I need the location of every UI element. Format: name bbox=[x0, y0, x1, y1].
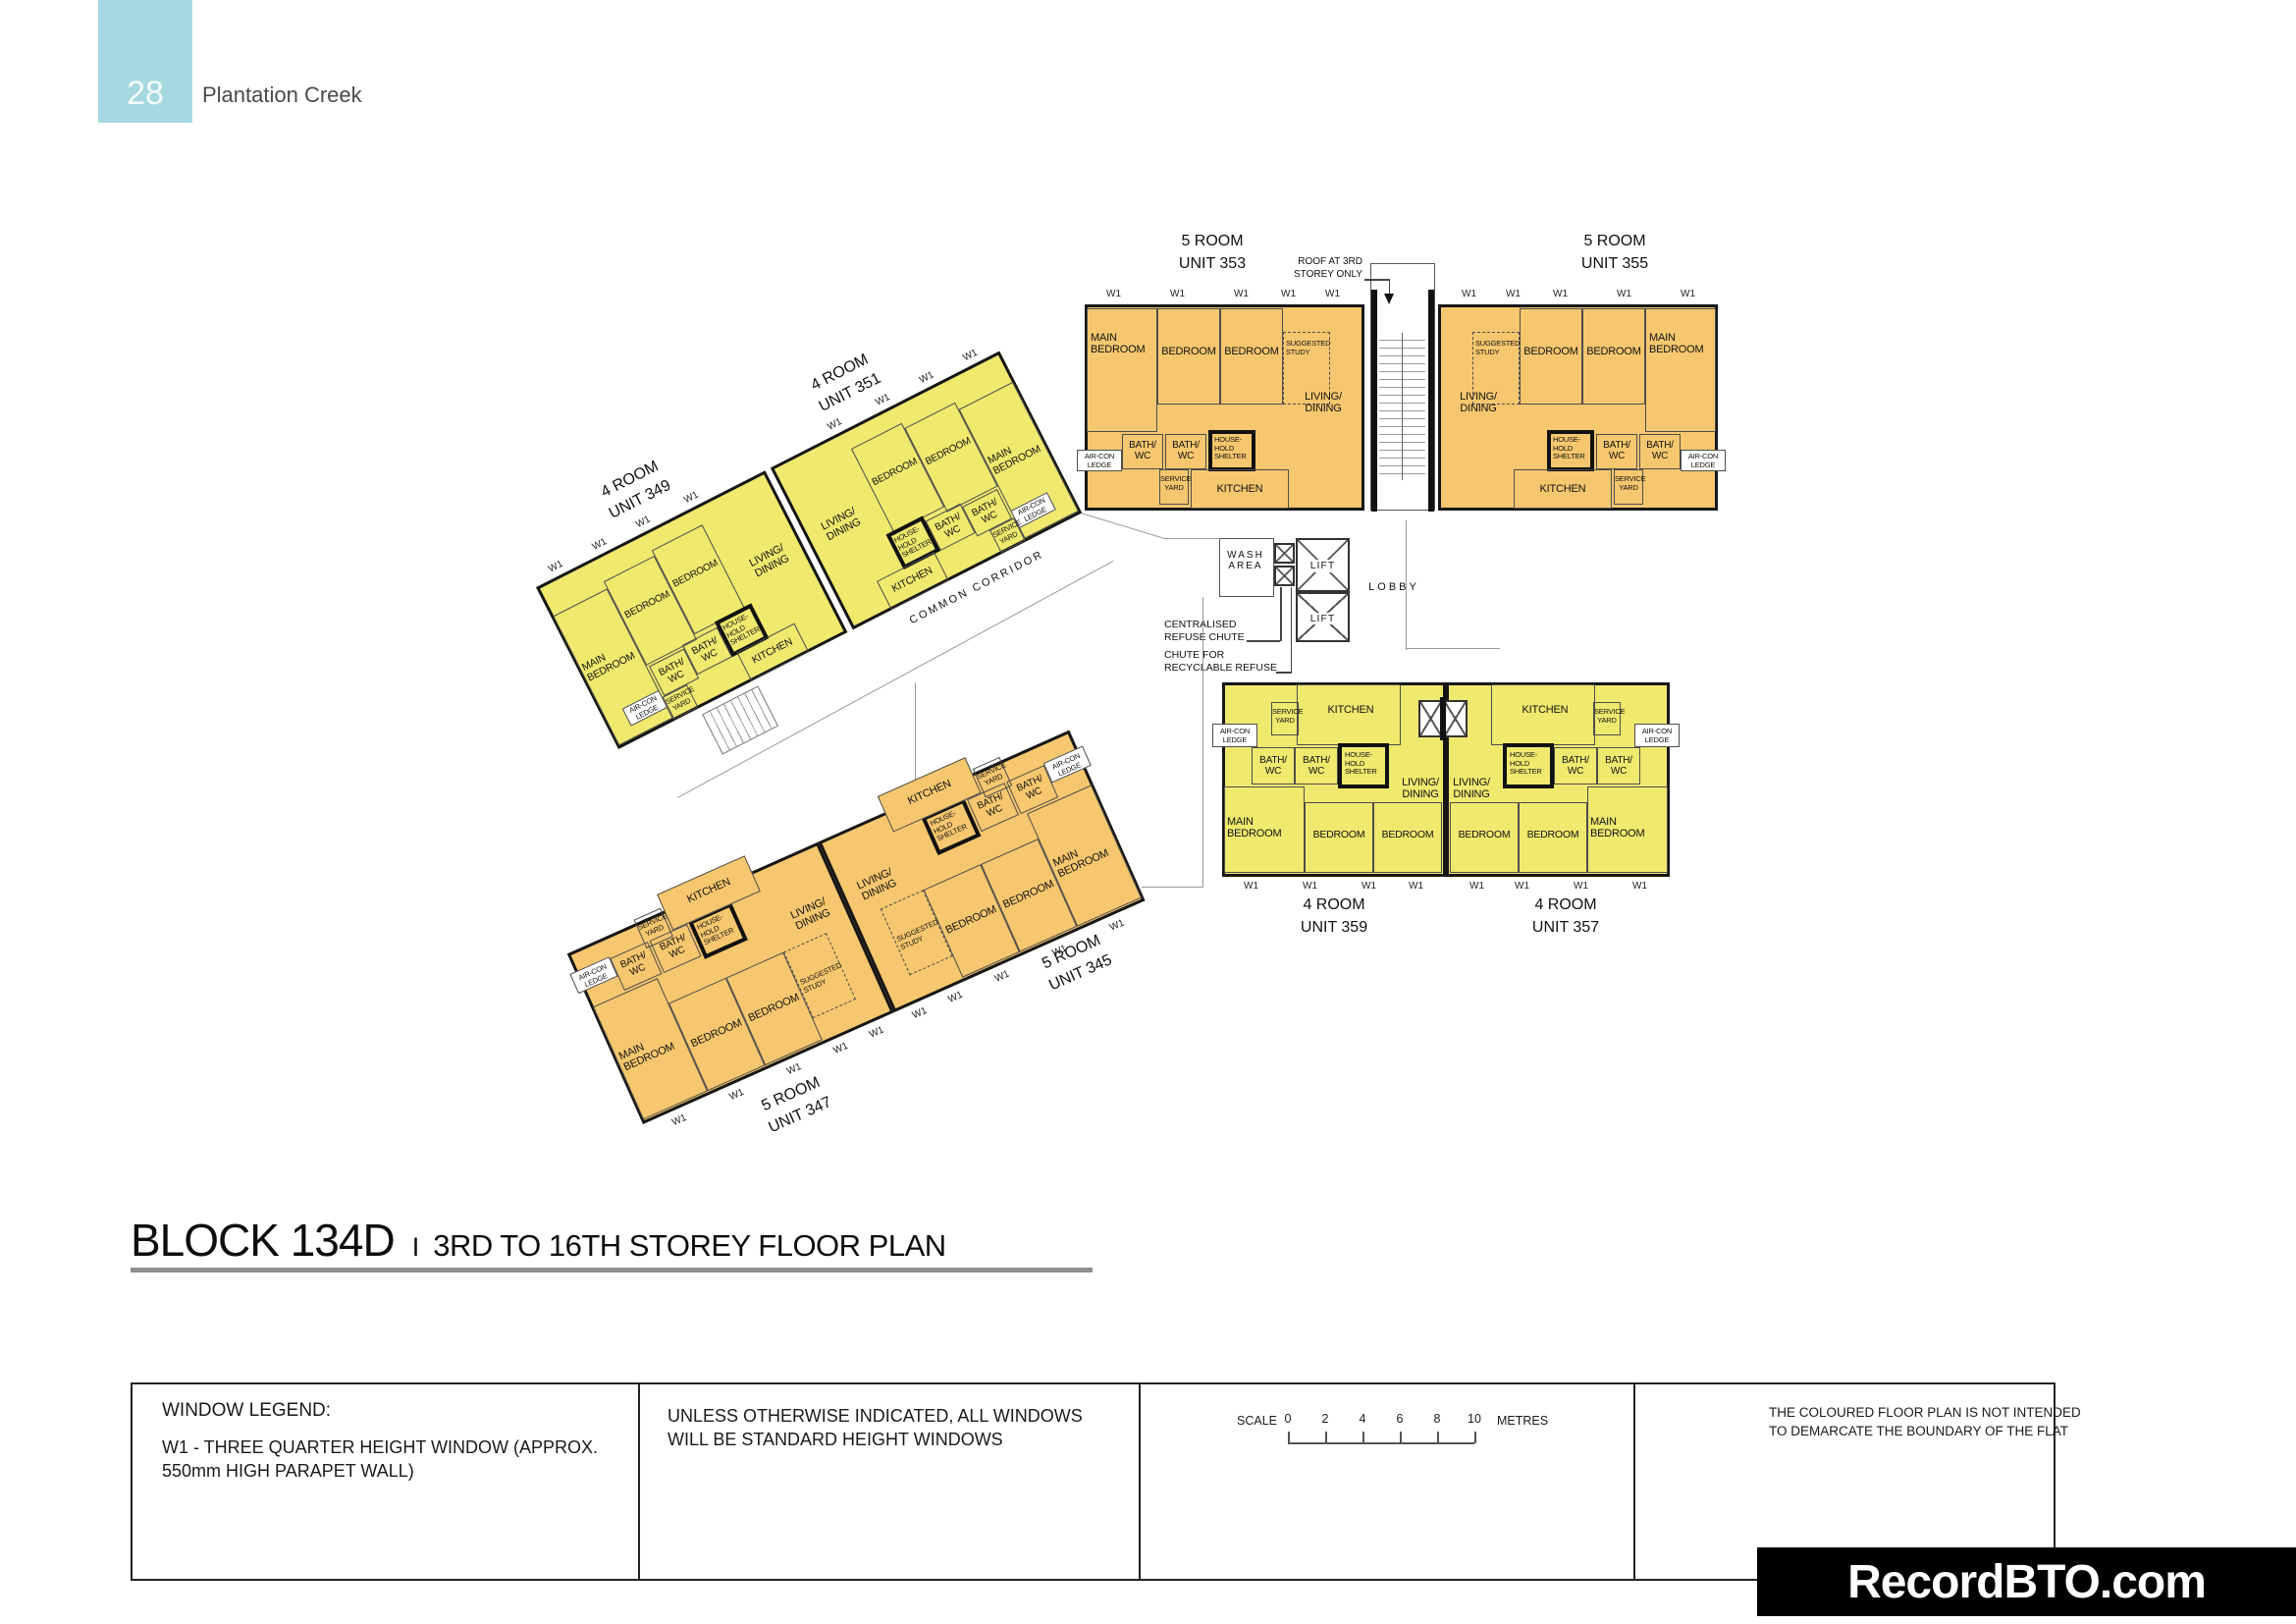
w1-window-label: W1 bbox=[961, 348, 979, 364]
stair-wall bbox=[1428, 290, 1434, 512]
room-label-bedroom: BEDROOM bbox=[1375, 830, 1440, 841]
w1-window-label: W1 bbox=[868, 1025, 885, 1041]
unit-type: 5 ROOM bbox=[1526, 230, 1703, 252]
block-title: BLOCK 134D bbox=[131, 1215, 395, 1266]
w1-window-label: W1 bbox=[831, 1041, 849, 1056]
room-label-bath-wc: BATH/ WC bbox=[1598, 440, 1635, 461]
plan-title: BLOCK 134DI3RD TO 16TH STOREY FLOOR PLAN bbox=[131, 1214, 946, 1267]
block-349-351: 4 ROOM UNIT 349 4 ROOM UNIT 351 W1 W1 W1… bbox=[536, 352, 1082, 749]
room-label-living-dining: LIVING/ DINING bbox=[1293, 391, 1354, 414]
table-divider bbox=[1139, 1384, 1141, 1579]
room-label-bedroom: BEDROOM bbox=[1584, 346, 1643, 357]
w1-window-label: W1 bbox=[1462, 289, 1476, 299]
window-legend-body: W1 - THREE QUARTER HEIGHT WINDOW (APPROX… bbox=[162, 1435, 604, 1484]
room-label-main-bedroom: MAIN BEDROOM bbox=[1227, 816, 1304, 839]
corridor-line bbox=[1406, 648, 1500, 649]
scale-bar-tick bbox=[1288, 1432, 1290, 1443]
room-label-service-yard: SERVICE YARD bbox=[1160, 475, 1188, 492]
room-label-bedroom: BEDROOM bbox=[1521, 830, 1585, 841]
unit-type: 5 ROOM bbox=[1124, 230, 1301, 252]
w1-window-label: W1 bbox=[1617, 289, 1631, 299]
unit-tag-359: 4 ROOM UNIT 359 bbox=[1246, 893, 1422, 939]
room-label-living-dining: LIVING/ DINING bbox=[1448, 777, 1495, 800]
room-label-bath-wc: BATH/ WC bbox=[1641, 440, 1679, 461]
w1-window-label: W1 bbox=[1632, 881, 1647, 892]
w1-window-label: W1 bbox=[634, 514, 652, 531]
disclaimer-note: THE COLOURED FLOOR PLAN IS NOT INTENDED … bbox=[1769, 1404, 2103, 1441]
room-main-bedroom bbox=[1645, 308, 1716, 432]
room-label-kitchen: KITCHEN bbox=[1533, 483, 1592, 495]
unit-359: 4 ROOM UNIT 359 W1 W1 W1 W1 KITCHEN SERV… bbox=[1222, 682, 1446, 877]
w1-window-label: W1 bbox=[1170, 289, 1185, 299]
room-label-household-shelter: HOUSE- HOLD SHELTER bbox=[1345, 751, 1386, 777]
scale-bar-tick bbox=[1325, 1432, 1327, 1443]
w1-window-label: W1 bbox=[1362, 881, 1376, 892]
w1-window-label: W1 bbox=[785, 1061, 803, 1077]
room-label-household-shelter: HOUSE- HOLD SHELTER bbox=[1553, 436, 1592, 461]
room-label-suggested-study: SUGGESTED STUDY bbox=[1286, 340, 1329, 356]
unit-number: UNIT 359 bbox=[1246, 916, 1422, 939]
w1-window-label: W1 bbox=[874, 392, 891, 408]
w1-window-label: W1 bbox=[1244, 881, 1258, 892]
scale-unit: METRES bbox=[1497, 1414, 1548, 1428]
project-name: Plantation Creek bbox=[202, 82, 362, 108]
unit-353: 5 ROOM UNIT 353 W1 W1 W1 W1 W1 MAIN BEDR… bbox=[1085, 304, 1364, 511]
room-label-main-bedroom: MAIN BEDROOM bbox=[1649, 332, 1716, 355]
room-label-kitchen: KITCHEN bbox=[1210, 483, 1269, 495]
w1-window-label: W1 bbox=[682, 490, 700, 507]
room-label-bath-wc: BATH/ WC bbox=[1255, 755, 1292, 777]
room-label-living-dining: LIVING/ DINING bbox=[1397, 777, 1444, 800]
lift-1: LIFT bbox=[1296, 538, 1350, 592]
w1-window-label: W1 bbox=[1303, 881, 1317, 892]
room-label-service-yard: SERVICE YARD bbox=[1615, 475, 1642, 492]
room-label-wash-area: WASH AREA bbox=[1223, 550, 1268, 571]
recyclable-leader-line bbox=[1291, 587, 1293, 673]
room-label-bath-wc: BATH/ WC bbox=[1124, 440, 1161, 461]
window-legend-title: WINDOW LEGEND: bbox=[162, 1400, 331, 1422]
table-divider bbox=[638, 1384, 640, 1579]
w1-window-label: W1 bbox=[826, 416, 843, 433]
w1-window-label: W1 bbox=[1234, 289, 1249, 299]
room-label-main-bedroom: MAIN BEDROOM bbox=[1091, 332, 1157, 355]
room-label-living-dining: LIVING/ DINING bbox=[1448, 391, 1509, 414]
table-divider bbox=[1633, 1384, 1635, 1579]
page-number: 28 bbox=[98, 75, 192, 113]
room-label-service-yard: SERVICE YARD bbox=[1272, 708, 1298, 725]
room-label-aircon-ledge: AIR-CON LEDGE bbox=[1636, 728, 1678, 744]
corridor-line bbox=[915, 682, 916, 781]
block-345-347: 5 ROOM UNIT 347 5 ROOM UNIT 345 W1 W1 W1… bbox=[567, 731, 1146, 1124]
unit-number: UNIT 355 bbox=[1526, 252, 1703, 275]
scale-bar-tick bbox=[1474, 1432, 1476, 1443]
corridor-line bbox=[1406, 520, 1407, 650]
w1-window-label: W1 bbox=[1281, 289, 1296, 299]
room-label-bedroom: BEDROOM bbox=[1222, 346, 1281, 357]
unit-355: 5 ROOM UNIT 355 W1 W1 W1 W1 W1 MAIN BEDR… bbox=[1438, 304, 1718, 511]
unit-number: UNIT 357 bbox=[1477, 916, 1654, 939]
unit-tag-355: 5 ROOM UNIT 355 bbox=[1526, 230, 1703, 275]
w1-window-label: W1 bbox=[911, 1005, 929, 1021]
corridor-line bbox=[1165, 538, 1220, 539]
w1-window-label: W1 bbox=[1409, 881, 1423, 892]
plan-subtitle: 3RD TO 16TH STOREY FLOOR PLAN bbox=[433, 1228, 945, 1263]
refuse-leader-line bbox=[1247, 640, 1280, 642]
corridor-line bbox=[1142, 887, 1202, 888]
w1-window-label: W1 bbox=[1681, 289, 1695, 299]
scale-tick-4: 4 bbox=[1353, 1412, 1372, 1426]
room-label-lift: LIFT bbox=[1298, 613, 1348, 625]
scale-tick-0: 0 bbox=[1278, 1412, 1298, 1426]
room-label-bedroom: BEDROOM bbox=[1159, 346, 1218, 357]
room-label-household-shelter: HOUSE- HOLD SHELTER bbox=[1214, 436, 1254, 461]
w1-window-label: W1 bbox=[1515, 881, 1529, 892]
room-label-bedroom: BEDROOM bbox=[1522, 346, 1580, 357]
w1-window-label: W1 bbox=[1574, 881, 1588, 892]
room-label-bedroom: BEDROOM bbox=[1452, 830, 1517, 841]
room-main-bedroom bbox=[1087, 308, 1157, 432]
scale-bar bbox=[1288, 1442, 1474, 1444]
room-label-suggested-study: SUGGESTED STUDY bbox=[1475, 340, 1519, 356]
roof-arrow-icon bbox=[1384, 294, 1394, 304]
chute-wall bbox=[1440, 697, 1446, 740]
room-label-household-shelter: HOUSE- HOLD SHELTER bbox=[1510, 751, 1551, 777]
room-label-aircon-ledge: AIR-CON LEDGE bbox=[1682, 453, 1724, 469]
roof-leader-line bbox=[1389, 279, 1391, 295]
scale-bar-tick bbox=[1437, 1432, 1439, 1443]
scale-bar-tick bbox=[1362, 1432, 1364, 1443]
w1-window-label: W1 bbox=[727, 1087, 745, 1103]
refuse-chute-symbol bbox=[1443, 700, 1468, 737]
w1-window-label: W1 bbox=[1506, 289, 1521, 299]
w1-window-label: W1 bbox=[591, 536, 609, 553]
scale-tick-10: 10 bbox=[1465, 1412, 1484, 1426]
w1-window-label: W1 bbox=[1325, 289, 1340, 299]
roof-leader-line bbox=[1364, 279, 1390, 281]
stair-wall bbox=[1371, 290, 1377, 512]
room-label-bath-wc: BATH/ WC bbox=[1600, 755, 1637, 777]
room-label-bath-wc: BATH/ WC bbox=[1298, 755, 1335, 777]
scale-bar-tick bbox=[1400, 1432, 1402, 1443]
room-label-kitchen: KITCHEN bbox=[1316, 704, 1385, 716]
w1-window-label: W1 bbox=[946, 990, 964, 1005]
w1-window-label: W1 bbox=[918, 369, 935, 386]
title-separator: I bbox=[412, 1232, 420, 1262]
room-label-lobby: LOBBY bbox=[1359, 581, 1429, 593]
refuse-chute-symbol bbox=[1274, 543, 1295, 564]
room-label-lift: LIFT bbox=[1298, 560, 1348, 572]
room-label-bedroom: BEDROOM bbox=[1307, 830, 1371, 841]
lift-2: LIFT bbox=[1296, 592, 1350, 642]
w1-window-label: W1 bbox=[547, 559, 564, 575]
w1-window-label: W1 bbox=[670, 1112, 688, 1128]
room-label-aircon-ledge: AIR-CON LEDGE bbox=[1079, 453, 1120, 469]
roof-note: ROOF AT 3RD STOREY ONLY bbox=[1274, 256, 1362, 281]
room-label-kitchen: KITCHEN bbox=[1511, 704, 1579, 716]
w1-window-label: W1 bbox=[1469, 881, 1484, 892]
corridor-line bbox=[1078, 512, 1166, 539]
scale-tick-8: 8 bbox=[1427, 1412, 1447, 1426]
refuse-leader-line bbox=[1280, 587, 1282, 641]
title-underline bbox=[131, 1268, 1093, 1272]
unit-type: 4 ROOM bbox=[1246, 893, 1422, 916]
room-label-service-yard: SERVICE YARD bbox=[1594, 708, 1620, 725]
windows-note: UNLESS OTHERWISE INDICATED, ALL WINDOWS … bbox=[667, 1404, 1119, 1452]
w1-window-label: W1 bbox=[1106, 289, 1121, 299]
page-number-box: 28 bbox=[98, 0, 192, 123]
floor-plan-page: 28 Plantation Creek 5 ROOM UNIT 353 W1 W… bbox=[0, 0, 2296, 1624]
w1-window-label: W1 bbox=[1553, 289, 1568, 299]
room-label-bath-wc: BATH/ WC bbox=[1557, 755, 1594, 777]
stairwell bbox=[1370, 263, 1435, 511]
recyclable-chute-symbol bbox=[1274, 566, 1295, 586]
watermark-banner: RecordBTO.com bbox=[1757, 1547, 2296, 1616]
corridor-line bbox=[1202, 597, 1203, 888]
room-label-main-bedroom: MAIN BEDROOM bbox=[1590, 816, 1667, 839]
unit-type: 4 ROOM bbox=[1477, 893, 1654, 916]
room-label-bath-wc: BATH/ WC bbox=[1167, 440, 1204, 461]
scale-tick-6: 6 bbox=[1390, 1412, 1410, 1426]
room-label-aircon-ledge: AIR-CON LEDGE bbox=[1214, 728, 1255, 744]
scale-tick-2: 2 bbox=[1315, 1412, 1335, 1426]
unit-357: 4 ROOM UNIT 357 W1 W1 W1 W1 KITCHEN SERV… bbox=[1446, 682, 1670, 877]
unit-tag-357: 4 ROOM UNIT 357 bbox=[1477, 893, 1654, 939]
stair-divider bbox=[1402, 333, 1403, 480]
scale-label: SCALE bbox=[1237, 1414, 1277, 1428]
